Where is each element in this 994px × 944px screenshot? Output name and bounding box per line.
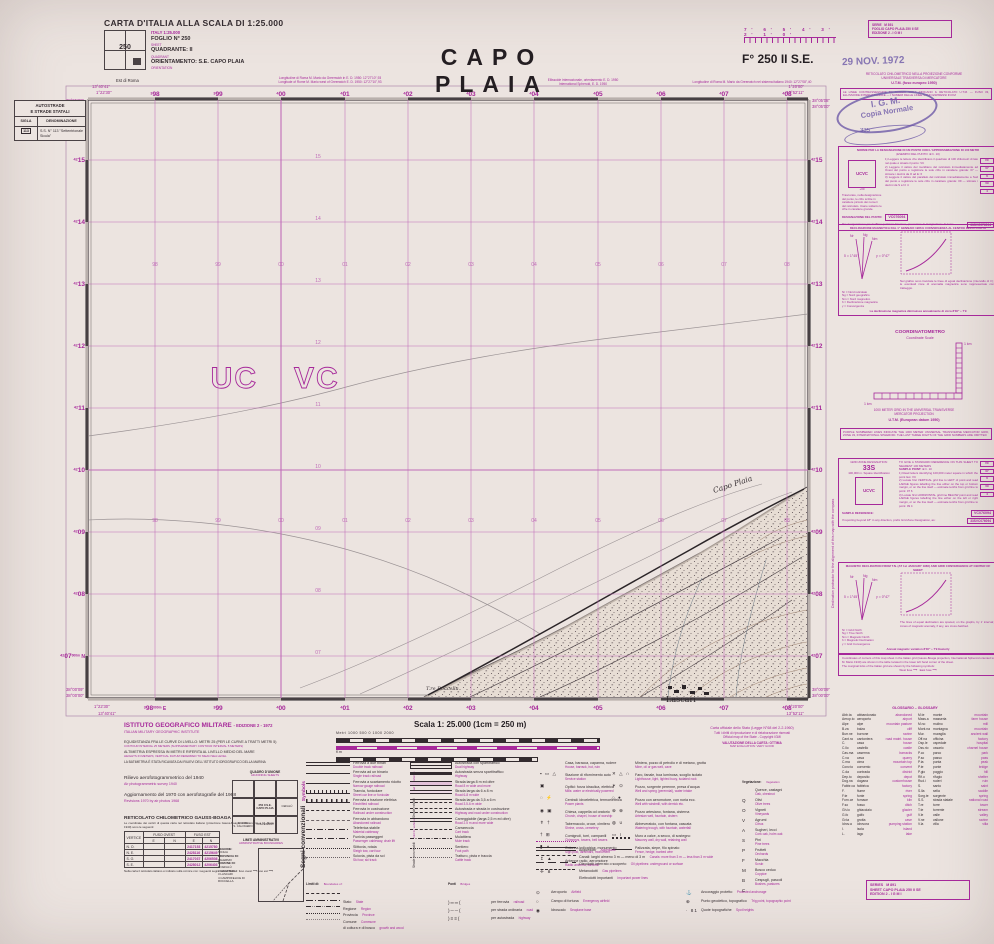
frame-bar [85, 594, 88, 656]
datum-est-roma: Est di Roma [116, 78, 139, 84]
frame-bar [724, 97, 787, 100]
glossary-entry: V.lavillavilla [918, 822, 988, 827]
legend-column: Autostrada con spartitrafficoDual highwa… [410, 761, 538, 863]
grid-label: 4212 [811, 343, 823, 350]
legend-item: ⊕Punto geodetico, topografico Trig point… [686, 889, 844, 898]
grid-label: 399 [213, 91, 223, 98]
corner-coordinate: 38°00'00" [66, 693, 84, 698]
grid-interior-label: 06 [658, 518, 664, 524]
orientation-label-en: ORIENTATION [151, 66, 244, 70]
minute-ruler-ticks [744, 37, 836, 43]
ucvc-diagram: UCVC [848, 160, 876, 188]
legend-item: AAgrumiCitrus [742, 818, 842, 828]
adjoining-sheet-cell: COLLESANO [254, 816, 276, 834]
corner-coordinate: 13°40'41" [98, 711, 116, 716]
svg-text:1 km: 1 km [964, 342, 972, 346]
grid-interior-label: 04 [531, 262, 537, 268]
grid-label: 4213 [811, 281, 823, 288]
frame-bar [808, 346, 811, 408]
grid-label: 403 [466, 705, 476, 712]
scale-title: Scala 1: 25.000 (1cm = 250 m) [414, 720, 636, 729]
legend-item: CCespugli, pascoliBushes, pastures [742, 878, 842, 888]
legend-column: ⊙Aeroporto Airfield○Campo di fortuna Eme… [536, 880, 684, 907]
datum-note-2: Ellissoide internazionale, orientamento … [508, 78, 658, 86]
grid-label: 398000m E [144, 705, 167, 712]
road-sigla: 113 [21, 128, 31, 134]
legend-item: Strada larga da 3,5 a 6 mRoad 3.5-6 m wi… [410, 798, 538, 807]
grid-interior-label: 06 [658, 262, 664, 268]
frame-bar [808, 160, 811, 222]
legend-item: FFruttetiOrchards [742, 848, 842, 858]
frame-bar [808, 532, 811, 594]
legend-item: VVignetiVineyards [742, 808, 842, 818]
frame-bar [808, 656, 811, 698]
svg-text:Nm: Nm [872, 578, 878, 582]
legend-item: Stato State [306, 890, 446, 897]
grid-label: 407 [719, 705, 729, 712]
quadrant: QUADRANTE: II [151, 47, 244, 54]
square-id-vc: VC [294, 362, 340, 395]
map-content [88, 314, 808, 700]
adjoining-sheet-cell [232, 798, 254, 816]
grid-interior-label: 99 [215, 262, 221, 268]
series-title: CARTA D'ITALIA ALLA SCALA DI 1:25.000 [104, 18, 354, 28]
frame-bar [408, 698, 471, 701]
grid-interior-label: 07 [315, 650, 321, 656]
legend-item: ⊙Aeroporto Airfield [536, 880, 684, 889]
grid-interior-label: 00 [278, 262, 284, 268]
date-stamp: 29 NOV. 1972 [842, 55, 905, 68]
grid-interior-label: 00 [278, 518, 284, 524]
adjoining-sheet-cell: 250 II S.E.CAPO PLAIA [254, 798, 276, 816]
corner-coordinate: 13°40'41" [92, 84, 110, 89]
title-block: CARTA D'ITALIA ALLA SCALA DI 1:25.000 25… [104, 18, 354, 70]
svg-text:Ng: Ng [863, 574, 868, 578]
frame-bar [281, 698, 345, 701]
legend-item: Tratturo, pista e tracciaCattle track [410, 854, 538, 863]
legend-item: SSugheri, lecciCork oak, holm oak [742, 828, 842, 838]
svg-text:1 km: 1 km [864, 402, 872, 406]
corner-coordinate: 13°52'11" [786, 711, 804, 716]
grid-label: 4207000m N [60, 653, 85, 660]
grid-interior-label: 98 [152, 518, 158, 524]
grid-interior-label: 99 [215, 518, 221, 524]
zone-reference: 33SVC076094 [967, 518, 994, 524]
designation-bracket: VC076094 [978, 158, 994, 212]
purple-lines-note-en: PURPLE NUMBERED LINES INDICATE THE 1000 … [840, 428, 992, 440]
datum-note-1: Longitudine di Roma M. Mario da Greenwic… [200, 76, 460, 84]
legend-item: · 81Quote topografiche Spot heights [686, 898, 844, 907]
isogonic-diagram [900, 231, 952, 275]
sheet-number: FOGLIO N° 250 [151, 36, 244, 43]
legend-item: ⊗ ⊕Pozzo con aeromotore, con noria ecc.W… [612, 798, 742, 810]
institute-name-en: ITALIAN MILITARY GEOGRAPHIC INSTITUTE [124, 730, 334, 735]
corner-coordinate: 38°00'09" [812, 687, 830, 692]
sheet-code: F° 250 II S.E. [742, 52, 814, 66]
grid-interior-label: 04 [531, 518, 537, 524]
legend-item: CarrarecciaCart track [410, 826, 538, 835]
grid-interior-label: 03 [468, 518, 474, 524]
declination-box-it: DECLINAZIONE MAGNETICA DAL 1° GENNAIO 19… [838, 224, 994, 316]
frame-bar [808, 222, 811, 284]
declination-box-en: MAGNETIC DECLINATION FROM T.N. (AT 1st J… [838, 562, 994, 654]
coordinate-scale: COORDINATOMETRO Coordinate Scale 1 km 1 … [858, 330, 982, 412]
declination-diagram-en: Nr Ng Nm δ = 1°45' γ = 0°47' [842, 572, 898, 622]
utm-grid-subtitle: U.T.M. (fuso europeo 1950) [838, 81, 990, 86]
frame-bar [345, 698, 408, 701]
grid-label: 398 [150, 91, 160, 98]
legend-item: Comune Commune [306, 910, 446, 917]
bathymetric-contour [88, 314, 808, 436]
orientation: ORIENTAMENTO: S.E. CAPO PLAIA [151, 59, 244, 66]
legend-item: Strada larga da 6 a 8 mRoad 6-8 m wide [410, 789, 538, 798]
bathymetry-note: LA BATIMETRIA È STATA RICAVATA DAI RILIE… [124, 760, 334, 764]
grid-label: 404 [529, 705, 539, 712]
grid-label: 400 [276, 705, 286, 712]
frame-bar [88, 698, 155, 701]
grid-label: 4213 [74, 281, 86, 288]
frame-bar [88, 97, 155, 100]
grid-label: 407 [719, 91, 729, 98]
legend-item: OOliviOlive trees [742, 798, 842, 808]
grid-label: 402 [403, 705, 413, 712]
grid-interior-label: 12 [315, 340, 321, 346]
adjoining-sheet-cell: MONTES. CALOGERO [232, 816, 254, 834]
frame-bar [808, 284, 811, 346]
series-box-it: SERIE M 891 FOGLIO CAPO PLAIA 250 II SE … [868, 20, 952, 38]
grid-interior-label: 08 [784, 518, 790, 524]
frame-bar [85, 532, 88, 594]
scale-bar: Scala 1: 25.000 (1cm = 250 m) Metri 1000… [336, 720, 636, 762]
map-title: CAPO PLAIA [382, 44, 602, 98]
scale-ticks: Metri 1000 500 0 1000 2000 [336, 731, 636, 735]
copyright-block: Carta ufficiale dello Stato (Legge N°68 … [664, 726, 840, 749]
corner-coordinate: 38°05'00" [812, 104, 830, 109]
glossary-entry: L.lagolake [842, 832, 912, 837]
legend-item: Carreggiabile (larga 2,5 m ed oltre)Road… [410, 817, 538, 826]
grid-label: 4215 [811, 157, 823, 164]
grid-label: 4208 [811, 591, 823, 598]
map-place-label: Capo Plaia [712, 474, 753, 495]
reference-bracket: VC076094 [978, 461, 994, 508]
corner-coordinate: 13°52'11" [786, 90, 804, 95]
isogonic-diagram-en [900, 572, 952, 616]
frame-bar [85, 656, 88, 698]
minute-ruler: 7' 6' 5' 4' 3' 2' 1' 0' [744, 27, 836, 43]
quadrant-marker [133, 58, 141, 65]
datum-note-3: Longitudine di Roma M. Mario da Greenwic… [662, 80, 842, 84]
legend-column: Vegetazione: VegetationQQuerce, castagni… [742, 770, 842, 888]
frame-bar [598, 97, 661, 100]
legend-item: ○Campo di fortuna Emergency airfield [536, 889, 684, 898]
adjoining-sheets: QUADRO D'UNIONE ADJOINING SHEETS 250 II … [232, 770, 298, 834]
grid-interior-label: 07 [721, 518, 727, 524]
grid-interior-label: 02 [405, 262, 411, 268]
frame-bar [155, 698, 218, 701]
corner-coordinate: 38°00'00" [812, 693, 830, 698]
grid-label: 4207 [811, 653, 823, 660]
grid-label: 400 [276, 91, 286, 98]
grid-interior-label: 05 [595, 518, 601, 524]
grid-label: 399 [213, 705, 223, 712]
legend-item: MulattieraMule track [410, 835, 538, 844]
frame-bar [85, 222, 88, 284]
legend-item: ○ ●Pozzo, sorgente perenne, presa d'acqu… [612, 785, 742, 797]
grid-label: 4211 [811, 405, 822, 412]
map-place-label: T.re Roccella [426, 686, 459, 692]
grid-interior-label: 01 [342, 262, 348, 268]
svg-text:Nm: Nm [872, 237, 878, 241]
glossary-title: GLOSSARIO – GLOSSARY [842, 706, 988, 711]
corner-coordinate: 38°05'08" [812, 98, 830, 103]
series-box-en: SERIES M 891 SHEET CAPO PLAIA 250 II SE … [866, 880, 970, 900]
legend-item: ✕ △ ∩Miniera, pozzo di petrolio e di met… [612, 761, 742, 773]
legend-item: SentieroFoot path [410, 845, 538, 854]
col-sigla: SIGLA [15, 117, 38, 126]
legend-item: Provincia Province [306, 903, 446, 910]
utm-datum-en: U.T.M. (European datum 1950) [838, 418, 990, 423]
frame-bar [85, 470, 88, 532]
grid-reference-box-en: GRID ZONE DESIGNATION: 33S 100,000 m. Sq… [838, 458, 994, 527]
frame-bar [661, 97, 724, 100]
grid-interior-label: 02 [405, 518, 411, 524]
ucvc-diagram-en: UCVC [855, 477, 883, 505]
grid-1000m-note: 1000 METER GRID IN THE UNIVERSAL TRANSVE… [838, 408, 990, 416]
legend-item: Autostrada e strada in costruzioneHighwa… [410, 807, 538, 816]
grid-interior-label: 03 [468, 262, 474, 268]
frame-bar [598, 698, 661, 701]
grid-label: 4215 [74, 157, 86, 164]
grid-interior-label: 08 [784, 262, 790, 268]
col-denominazione: DENOMINAZIONE [38, 117, 85, 126]
legend-item: ◉Idroscalo Seaplane base [536, 898, 684, 907]
corner-coordinate: 1°22'30" [96, 90, 112, 95]
grid-label: 405 [593, 705, 603, 712]
grid-label: 4211 [74, 405, 85, 412]
legend-item: Regione Region [306, 897, 446, 904]
grid-label: 4209 [74, 529, 86, 536]
legend-item: MMacchiaScrub [742, 858, 842, 868]
legend-item: ◍ ∪Pozzo artesiano, fontana, cisternaArt… [612, 810, 742, 822]
grid-interior-label: 98 [152, 262, 158, 268]
frame-bar [471, 698, 534, 701]
point-designation-box-it: NORME PER LA DESIGNAZIONE DI UN PUNTO CO… [838, 146, 994, 231]
adjoining-sheet-cell [232, 780, 254, 798]
map-sheet: 398398000m E9898399399999940040000004014… [0, 0, 994, 944]
index-diagram: 250 [104, 30, 146, 70]
glossary: GLOSSARIO – GLOSSARY Abb.taabbandonatoab… [842, 706, 988, 837]
frame-bar [85, 346, 88, 408]
svg-text:γ = 0°47': γ = 0°47' [876, 254, 890, 258]
grid-interior-label: 10 [315, 464, 321, 470]
grid-interior-label: 09 [315, 526, 321, 532]
grid-interior-label: 07 [721, 262, 727, 268]
map-place-label: Lascari [666, 695, 696, 704]
corner-coordinate: 38°00'09" [66, 687, 84, 692]
grid-interior-label: 15 [315, 154, 321, 160]
frame-bar [281, 97, 345, 100]
grid-interior-label: 01 [342, 518, 348, 524]
grid-interior-label: 14 [315, 216, 321, 222]
grid-label: 401 [340, 705, 350, 712]
grid-label: 401 [340, 91, 350, 98]
svg-text:Ng: Ng [863, 233, 868, 237]
svg-text:δ = 1°45': δ = 1°45' [844, 254, 858, 258]
grid-label: 4210 [74, 467, 86, 474]
svg-text:Nr: Nr [850, 575, 855, 579]
frame-bar [85, 160, 88, 222]
legend-item: Autostrada con spartitrafficoDual highwa… [410, 761, 538, 770]
grid-label: 406 [656, 705, 666, 712]
grid-label: 4210 [811, 467, 823, 474]
declination-diagram: Nr Ng Nm δ = 1°45' γ = 0°47' [842, 231, 898, 281]
legend-item: di coltura e di bosco growth and wood [306, 916, 446, 923]
legend-item: PPiniPine trees [742, 838, 842, 848]
coordinate-scale-ruler: 1 km 1 km [860, 341, 980, 407]
corner-coordinate: 1°22'30" [94, 704, 110, 709]
legend-item: ▭ ≀Abbeveratoio, con fontana, cascataWat… [612, 822, 742, 834]
adjoining-sheet-cell [254, 780, 276, 798]
frame-bar [218, 97, 281, 100]
legend-item: Strada larga 8 m ed oltreRoad 8 m wide a… [410, 780, 538, 789]
grid-label: 4209 [811, 529, 823, 536]
roads-table: AUTOSTRADE E STRADE STATALI SIGLA DENOMI… [14, 100, 86, 141]
bathymetric-contour [88, 519, 540, 634]
legend-item: ✶ ⊙Faro, fanale, boa luminosa, scoglio i… [612, 773, 742, 785]
road-denominazione: S.S. N° 113 "Settentrionale Sicula" [38, 127, 85, 140]
grid-label: 406 [656, 91, 666, 98]
corners-note-box: Coordinates of corners of this map sheet… [838, 654, 994, 676]
legend-item: QQuerce, castagniOak, chestnut [742, 788, 842, 798]
frame-bar [218, 698, 281, 701]
frame-bar [534, 698, 598, 701]
grid-interior-label: 13 [315, 278, 321, 284]
grid-label: 4212 [74, 343, 86, 350]
square-id-uc: UC [211, 362, 258, 395]
svg-text:δ = 1°45': δ = 1°45' [844, 595, 858, 599]
svg-text:Nr: Nr [850, 234, 855, 238]
margin-note: Declination protractor for the alignment… [831, 499, 835, 608]
grid-interior-label: 05 [595, 262, 601, 268]
grid-label: 4214 [74, 219, 86, 226]
institute-name: ISTITUTO GEOGRAFICO MILITARE [124, 722, 232, 729]
scale-bar-metric [336, 738, 600, 743]
roads-table-title: AUTOSTRADE [35, 103, 64, 108]
frame-bar [85, 408, 88, 470]
designation-result: VC076094 [885, 214, 908, 221]
legend-column: Limiti di: Boundaries of:Stato StateRegi… [306, 872, 446, 923]
legend-item: Autostrada senza spartitrafficoHighway [410, 770, 538, 779]
index-sheet-number: 250 [105, 44, 145, 51]
svg-text:γ = 0°47': γ = 0°47' [876, 595, 890, 599]
frame-bar [787, 698, 808, 701]
grid-label: 4208 [74, 591, 86, 598]
grid-label: 4214 [811, 219, 823, 226]
frame-bar [808, 408, 811, 470]
frame-bar [808, 100, 811, 160]
frame-bar [724, 698, 787, 701]
frame-bar [808, 594, 811, 656]
frame-bar [808, 470, 811, 532]
grid-interior-label: 08 [315, 588, 321, 594]
utm-grid-title: RETICOLATO CHILOMETRICO NELLA PROIEZIONE… [838, 72, 990, 80]
grid-interior-label: 11 [315, 402, 320, 408]
legend-item: BBosco ceduoCoppice [742, 868, 842, 878]
sample-reference: VC076094 [971, 510, 994, 517]
frame-bar [85, 284, 88, 346]
corner-coordinate: 1°20'00" [788, 704, 804, 709]
frame-bar [155, 97, 218, 100]
minute-ruler-numbers: 7' 6' 5' 4' 3' 2' 1' 0' [744, 27, 836, 37]
corner-coordinate: 1°20'00" [788, 84, 804, 89]
